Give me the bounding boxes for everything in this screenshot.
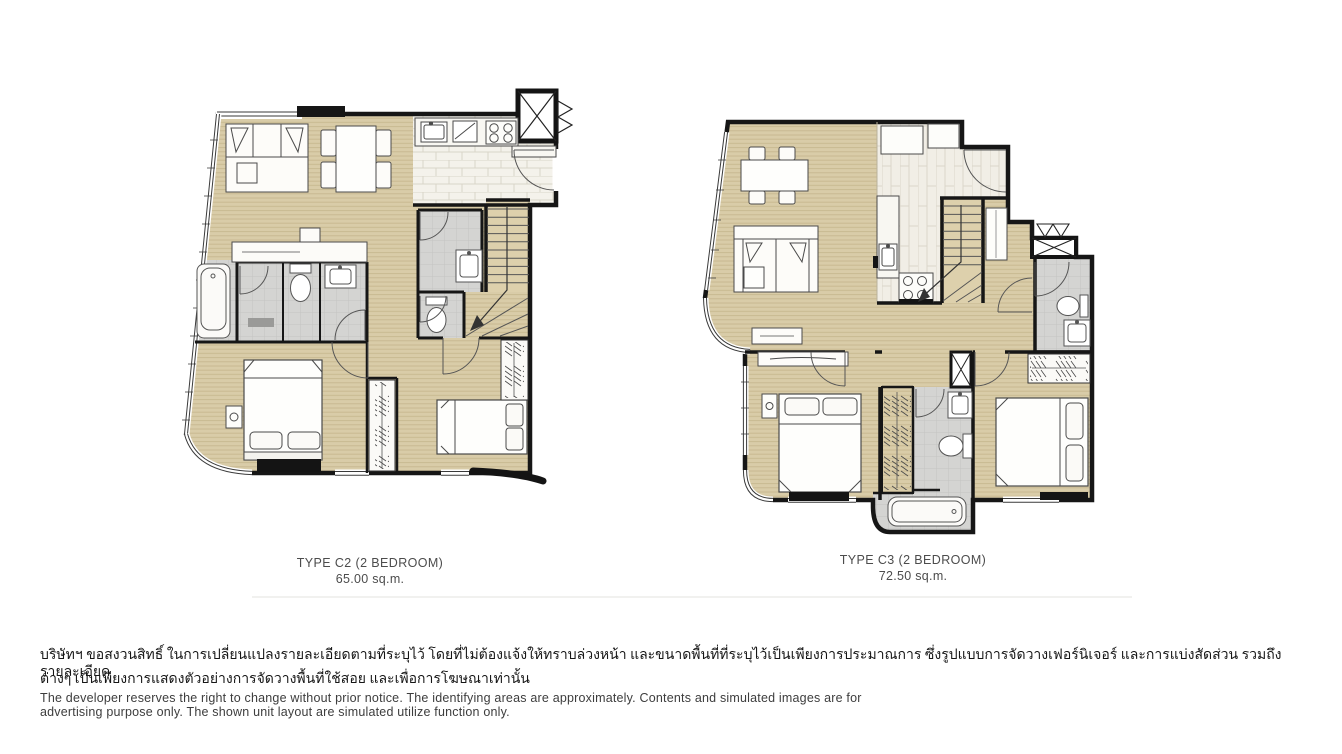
c3-tv-console-2 bbox=[1040, 492, 1088, 500]
c3-fridge bbox=[881, 126, 923, 154]
c3-stairs-floor bbox=[942, 198, 983, 303]
c2-chair bbox=[376, 162, 391, 188]
c3-dining-table bbox=[741, 160, 808, 191]
c3-nightstand bbox=[762, 394, 777, 418]
floorplan-c3-drawing bbox=[698, 108, 1100, 542]
c2-chair bbox=[376, 130, 391, 156]
plan-c2-title: TYPE C2 (2 BEDROOM) bbox=[180, 556, 560, 572]
c3-toilet bbox=[939, 436, 963, 456]
plan-c3-area: 72.50 sq.m. bbox=[718, 569, 1108, 585]
c2-bathtub bbox=[197, 264, 230, 338]
c2-vent-symbol bbox=[558, 101, 572, 133]
c2-stairs-floor bbox=[486, 200, 530, 292]
c3-chair bbox=[749, 147, 765, 160]
c2-living-room bbox=[226, 124, 391, 192]
plan-c2-area: 65.00 sq.m. bbox=[180, 572, 560, 588]
c3-pillow bbox=[1066, 445, 1083, 481]
c2-pillow bbox=[506, 404, 523, 426]
plan-c2-caption: TYPE C2 (2 BEDROOM) 65.00 sq.m. bbox=[180, 556, 560, 587]
c2-beam bbox=[297, 106, 345, 117]
floorplan-c2-drawing bbox=[178, 84, 582, 546]
c3-pillow bbox=[823, 398, 857, 415]
c3-cabinet-top bbox=[928, 124, 959, 148]
c2-chair bbox=[321, 162, 336, 188]
c2-shower-drain bbox=[248, 318, 274, 327]
c2-shaft bbox=[518, 91, 572, 141]
c3-pillow bbox=[785, 398, 819, 415]
c2-side-table bbox=[237, 163, 257, 183]
c3-pillow bbox=[1066, 403, 1083, 439]
c3-chair bbox=[779, 147, 795, 160]
c3-chair bbox=[749, 191, 765, 204]
c2-nightstand bbox=[226, 406, 242, 428]
english-disclaimer-line2: advertising purpose only. The shown unit… bbox=[40, 705, 1000, 720]
c2-toilet bbox=[291, 275, 311, 302]
c3-side-table bbox=[744, 267, 764, 288]
plan-c3-caption: TYPE C3 (2 BEDROOM) 72.50 sq.m. bbox=[718, 553, 1108, 584]
c3-toilet-2 bbox=[1057, 297, 1079, 316]
divider-line bbox=[252, 596, 1132, 598]
floorplan-brochure-page: TYPE C2 (2 BEDROOM) 65.00 sq.m. TYPE C3 … bbox=[0, 0, 1342, 754]
c2-pillow bbox=[506, 428, 523, 450]
english-disclaimer-line1: The developer reserves the right to chan… bbox=[40, 691, 1000, 706]
c2-chair bbox=[321, 130, 336, 156]
c3-vent-symbol bbox=[1037, 224, 1069, 237]
c3-chair bbox=[779, 191, 795, 204]
thai-disclaimer-line2: ต่างๆ เป็นเพียงการแสดงตัวอย่างการจัดวางพ… bbox=[40, 671, 1300, 688]
c2-wall-hook bbox=[473, 471, 543, 481]
c2-pillow bbox=[250, 432, 282, 449]
c2-dining-table bbox=[336, 126, 376, 192]
c3-tv-console bbox=[789, 492, 849, 501]
c2-tv-console bbox=[257, 459, 321, 472]
c2-pillow bbox=[288, 432, 320, 449]
plan-c3-title: TYPE C3 (2 BEDROOM) bbox=[718, 553, 1108, 569]
